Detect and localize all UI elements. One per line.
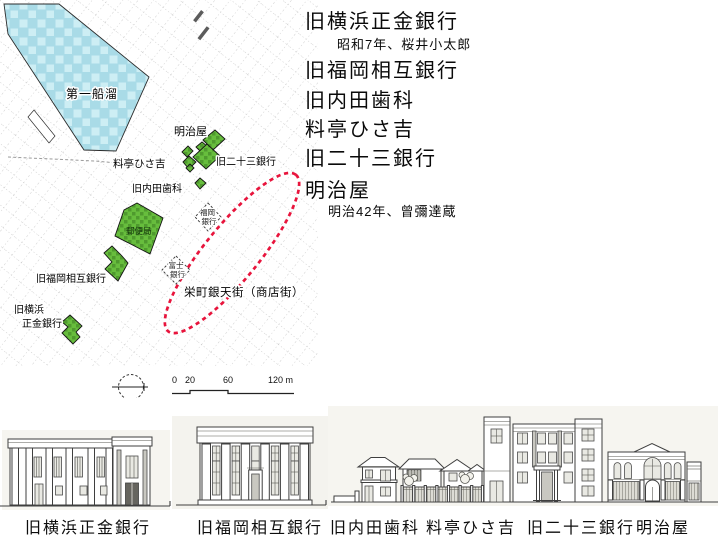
legend-name-meijiya: 明治屋 — [305, 174, 371, 203]
map-label-yokohama-2: 正金銀行 — [22, 317, 62, 330]
map-label-shopping-street: 栄町銀天街（商店街） — [184, 285, 304, 299]
fence — [401, 486, 484, 503]
legend-detail-yokohama: 昭和7年、桜井小太郎 — [337, 34, 471, 53]
map-label-yokohama-1: 旧横浜 — [14, 303, 44, 316]
roller-shutter-right — [666, 482, 680, 501]
gate-post — [355, 491, 359, 502]
roller-shutter-left — [613, 482, 639, 501]
map-label-nijusan-bank: 旧二十三銀行 — [216, 155, 276, 168]
elevation-fukuoka-sogo-bank — [197, 427, 313, 505]
legend-name-nijusan: 旧二十三銀行 — [305, 142, 437, 171]
elevation-nijusan-bank — [513, 419, 602, 502]
fuji-bank-label-1: 富士 — [169, 260, 184, 270]
legend-name-yokohama: 旧横浜正金銀行 — [305, 5, 459, 34]
elev-label-nijusan: 旧二十三銀行 — [527, 514, 635, 538]
tower — [484, 417, 510, 502]
fukuoka-bank-label-1: 福岡 — [200, 208, 215, 217]
building-legend: 旧横浜正金銀行 昭和7年、桜井小太郎 旧福岡相互銀行 旧内田歯科 料亭ひさ吉 旧… — [300, 0, 720, 232]
district-map: 第一船溜 福岡 銀行 富士 銀行 — [0, 0, 320, 398]
map-label-fukuoka-sogo: 旧福岡相互銀行 — [36, 272, 106, 285]
elevation-yokohama-shokin-bank — [8, 437, 152, 505]
ground-floor — [608, 480, 685, 501]
legend-detail-meijiya: 明治42年、曾彌達蔵 — [328, 201, 456, 220]
map-label-ryotei: 料亭ひさ吉 — [113, 157, 166, 170]
fukuoka-bank-label-2: 銀行 — [202, 216, 217, 226]
scale-tick-0: 0 — [172, 375, 177, 385]
elev-label-meijiya: 明治屋 — [636, 514, 690, 538]
map-label-meijiya: 明治屋 — [174, 124, 207, 138]
elev-label-yokohama: 旧横浜正金銀行 — [25, 514, 151, 538]
water-label-text: 第一船溜 — [66, 86, 118, 101]
garden-wall — [334, 496, 356, 502]
annex — [687, 462, 701, 502]
map-panel: 第一船溜 福岡 銀行 富士 銀行 — [0, 0, 320, 398]
map-label-uchida: 旧内田歯科 — [132, 182, 182, 195]
legend-name-fukuoka: 旧福岡相互銀行 — [305, 54, 459, 83]
elev-label-fukuoka: 旧福岡相互銀行 — [197, 514, 323, 538]
left-windows — [518, 433, 528, 483]
survey-page: 第一船溜 福岡 銀行 富士 銀行 — [0, 0, 720, 540]
legend-name-uchida: 旧内田歯科 — [305, 84, 415, 113]
legend-name-ryotei: 料亭ひさ吉 — [305, 113, 415, 142]
central-entrance — [247, 468, 264, 500]
elev-label-uchida: 旧内田歯科 — [330, 514, 420, 538]
fuji-bank-label-2: 銀行 — [170, 269, 185, 279]
scale-tick-120: 120 m — [268, 375, 293, 385]
elev-label-ryotei: 料亭ひさ吉 — [426, 514, 516, 538]
map-label-post-office: 郵便局 — [126, 226, 152, 236]
scale-tick-60: 60 — [223, 375, 233, 385]
scale-tick-20: 20 — [185, 375, 195, 385]
